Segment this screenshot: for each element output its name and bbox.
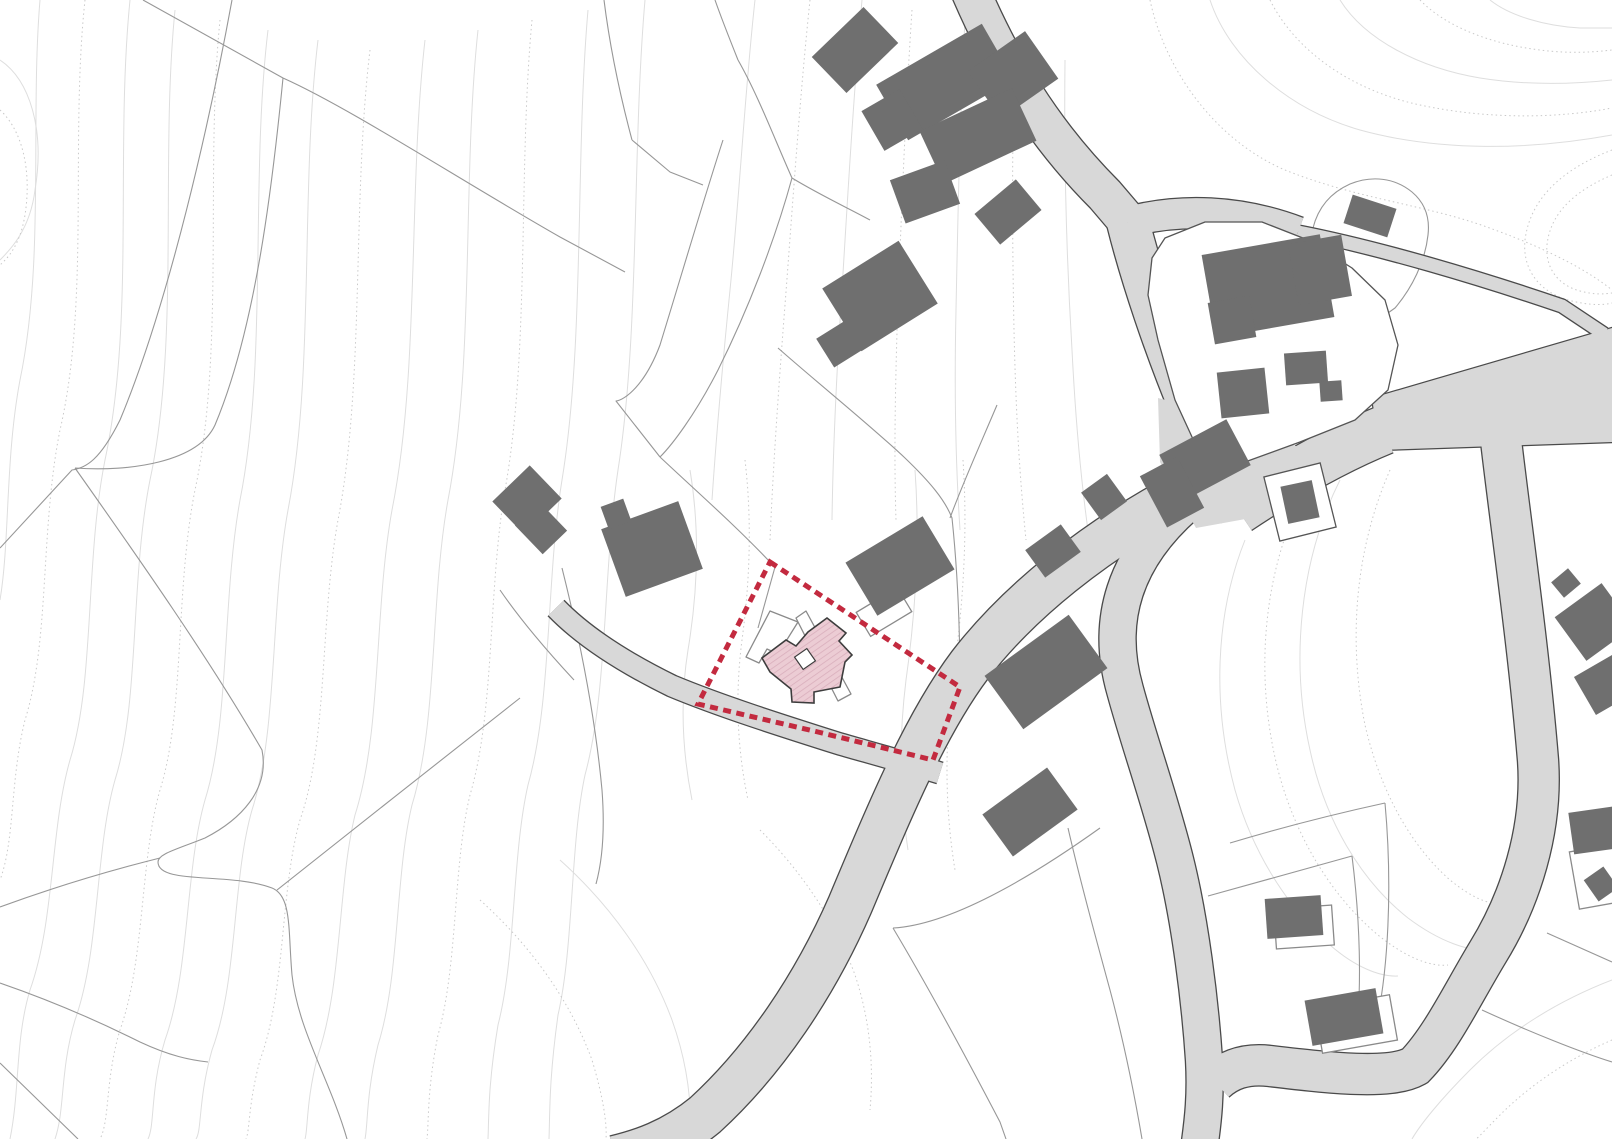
road-area bbox=[1372, 328, 1612, 450]
parcel-line bbox=[792, 178, 870, 220]
parcel-line bbox=[283, 78, 625, 272]
parcel-line bbox=[1068, 828, 1142, 1139]
parcel-line bbox=[715, 0, 738, 60]
building bbox=[1208, 296, 1257, 345]
parcel-line bbox=[143, 0, 283, 78]
parcel-line bbox=[1547, 933, 1612, 962]
building bbox=[1288, 235, 1352, 305]
building bbox=[1217, 368, 1270, 419]
contour-line bbox=[712, 0, 755, 500]
building bbox=[982, 767, 1077, 856]
contour-line bbox=[0, 110, 27, 265]
contour-line bbox=[0, 60, 38, 260]
contour-line bbox=[1525, 150, 1612, 305]
parcel-line bbox=[277, 698, 520, 890]
parcel-line bbox=[1482, 1010, 1612, 1062]
parcel-line bbox=[1230, 803, 1385, 843]
parcel-line bbox=[616, 140, 723, 457]
parcel-line bbox=[893, 828, 1100, 1139]
contour-line bbox=[427, 20, 532, 1139]
contour-line bbox=[770, 0, 810, 540]
contour-line bbox=[0, 0, 85, 880]
contour-line bbox=[488, 10, 588, 1139]
contour-line bbox=[738, 460, 749, 800]
contour-line bbox=[305, 40, 425, 1139]
contour-line bbox=[0, 0, 40, 600]
contour-line bbox=[1340, 0, 1612, 84]
contour-line bbox=[365, 30, 478, 1139]
contour-line bbox=[10, 0, 130, 1139]
contour-line bbox=[1300, 480, 1490, 950]
road bbox=[1118, 505, 1205, 1139]
contour-line bbox=[1210, 0, 1612, 146]
parcel-line bbox=[660, 178, 792, 457]
parcel-line bbox=[738, 60, 792, 178]
site-plan-map bbox=[0, 0, 1612, 1139]
building bbox=[1284, 351, 1328, 386]
building bbox=[1568, 806, 1612, 855]
contour-line bbox=[100, 20, 220, 1139]
building bbox=[1574, 655, 1612, 715]
contour-line bbox=[55, 10, 175, 1139]
parcel-line bbox=[0, 858, 160, 907]
road bbox=[1215, 432, 1539, 1082]
contour-line bbox=[196, 40, 318, 1139]
contour-line bbox=[1356, 470, 1500, 903]
contour-line bbox=[560, 860, 690, 1139]
parcel-line bbox=[632, 140, 703, 185]
contour-line bbox=[683, 470, 697, 800]
contour-line bbox=[148, 30, 268, 1139]
parcel-line bbox=[75, 468, 347, 1139]
parcel-line bbox=[604, 0, 632, 140]
roads bbox=[556, 0, 1612, 1139]
site-plan-page bbox=[0, 0, 1612, 1139]
building bbox=[1551, 568, 1581, 597]
parcel-line bbox=[0, 0, 232, 548]
parcel-line bbox=[1208, 856, 1352, 896]
building bbox=[1265, 895, 1324, 939]
building bbox=[974, 179, 1041, 244]
contour-line bbox=[1420, 0, 1612, 52]
contour-line bbox=[1490, 0, 1612, 28]
building bbox=[1319, 380, 1342, 401]
building bbox=[845, 516, 954, 615]
contour-line bbox=[1547, 175, 1612, 294]
